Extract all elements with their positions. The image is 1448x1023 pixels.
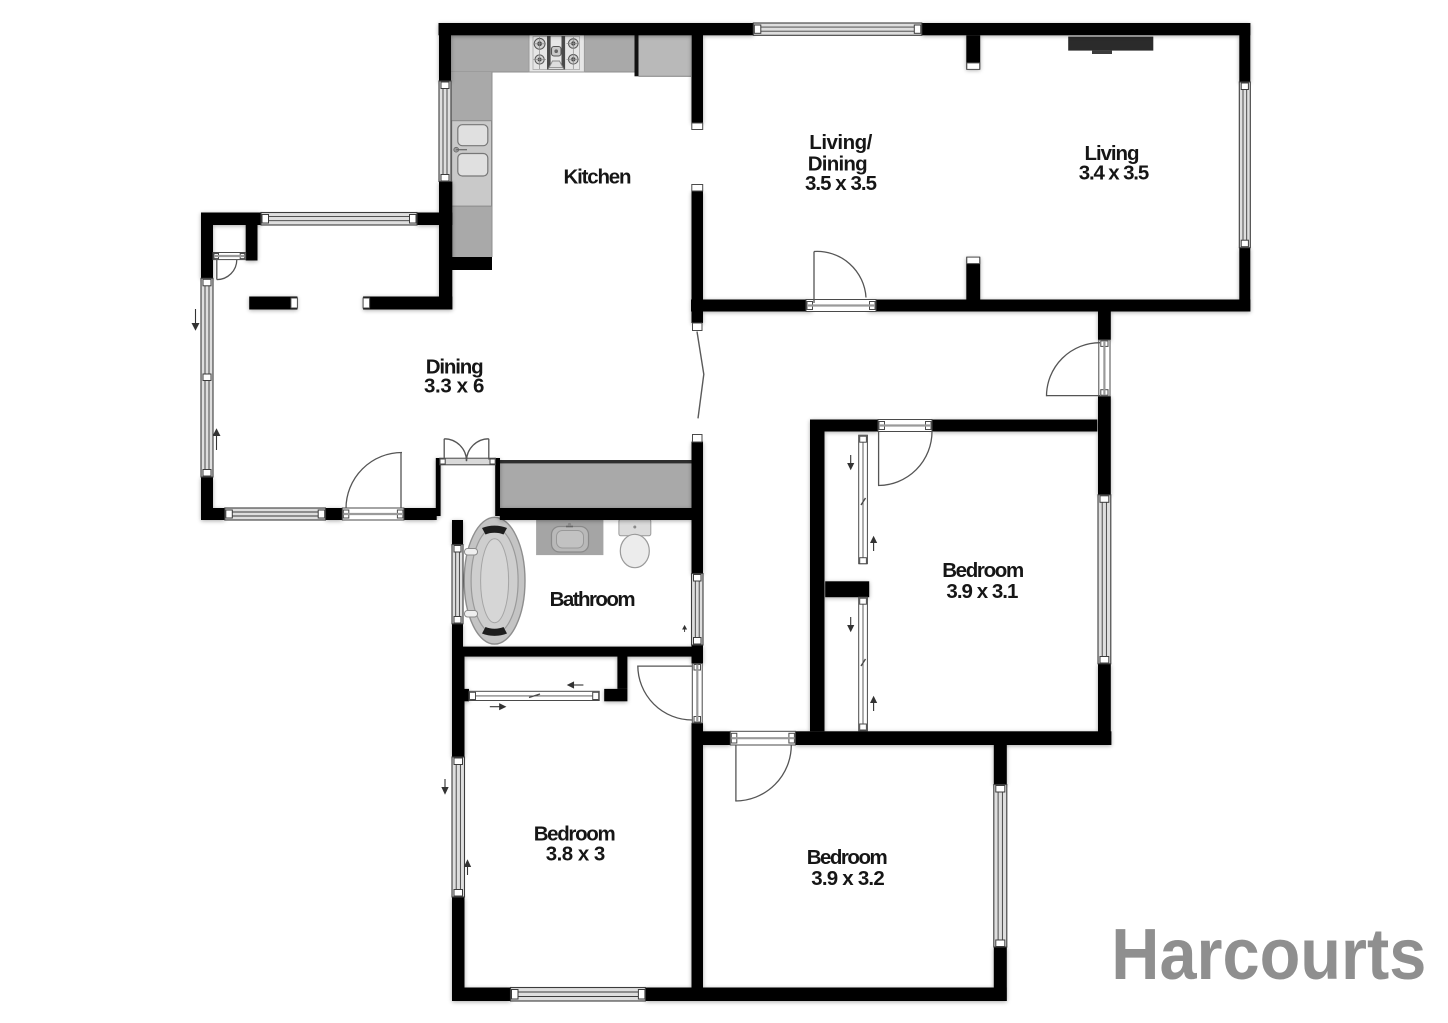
svg-text:3.4 x 3.5: 3.4 x 3.5 [1079,162,1150,185]
svg-text:Living/: Living/ [809,131,872,154]
svg-text:Bedroom: Bedroom [942,559,1024,582]
svg-text:Bedroom: Bedroom [807,846,888,869]
svg-text:Bathroom: Bathroom [550,588,636,611]
svg-text:3.5 x 3.5: 3.5 x 3.5 [805,172,877,195]
svg-text:Harcourts: Harcourts [1111,915,1426,995]
svg-text:3.9 x 3.2: 3.9 x 3.2 [811,867,885,890]
svg-text:Kitchen: Kitchen [564,165,632,188]
svg-text:3.9 x 3.1: 3.9 x 3.1 [946,580,1018,603]
svg-text:3.3 x 6: 3.3 x 6 [424,375,485,398]
svg-text:3.8 x 3: 3.8 x 3 [546,843,606,866]
